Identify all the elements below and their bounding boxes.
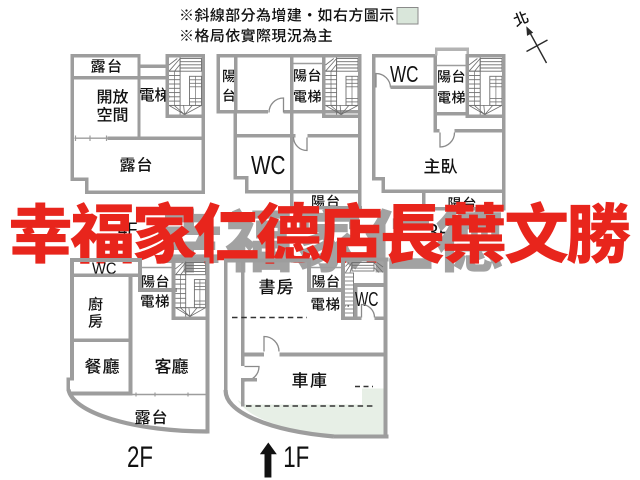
svg-text:WC: WC [251,152,286,180]
svg-text:2F: 2F [127,441,153,474]
svg-text:WC: WC [355,288,379,311]
svg-text:WC: WC [390,61,419,87]
svg-text:1F: 1F [283,441,309,474]
